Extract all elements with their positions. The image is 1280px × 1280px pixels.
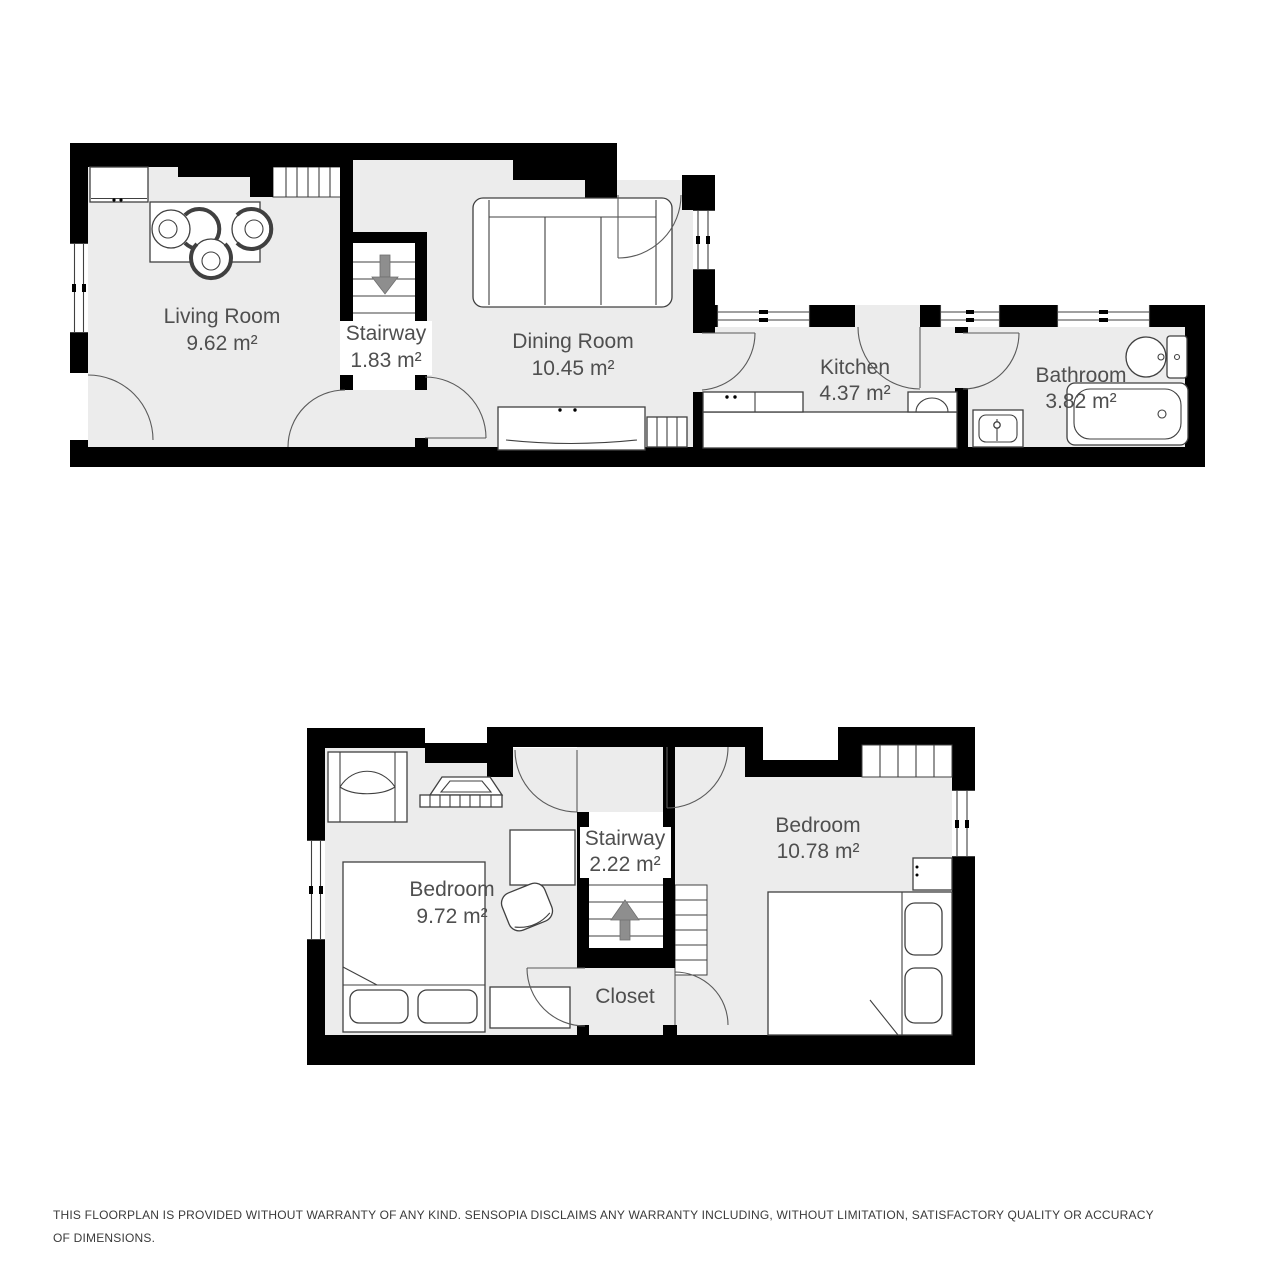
bed-right: [768, 892, 952, 1035]
dining-room-sofa: [473, 198, 672, 307]
room-label-living-room: Living Room: [164, 305, 281, 328]
toilet: [1126, 336, 1187, 378]
wardrobe: [328, 752, 407, 822]
room-area-stairway-1: 1.83 m²: [350, 349, 421, 372]
upper-floor-plan: Bedroom 9.72 m² Stairway 2.22 m² Bedroom…: [307, 727, 975, 1065]
disclaimer-text: THIS FLOORPLAN IS PROVIDED WITHOUT WARRA…: [53, 1204, 1158, 1250]
room-area-stairway-2: 2.22 m²: [589, 853, 660, 876]
exterior-notch: [763, 727, 838, 760]
room-label-kitchen: Kitchen: [820, 356, 890, 379]
room-label-bedroom-right: Bedroom: [775, 814, 860, 837]
dining-room-window: [693, 210, 715, 270]
room-area-bedroom-left: 9.72 m²: [416, 905, 487, 928]
bathroom-window: [1057, 305, 1150, 327]
side-steps: [675, 885, 707, 975]
kitchen-sink: [908, 392, 957, 412]
exterior-gap: [617, 143, 693, 180]
landing-floor: [577, 747, 663, 812]
living-room-window: [70, 243, 88, 333]
room-label-dining-room: Dining Room: [512, 330, 633, 353]
room-label-bedroom-left: Bedroom: [409, 878, 494, 901]
built-in-shelving: [862, 745, 952, 777]
living-room-chair: [191, 239, 231, 278]
dining-room-radiator: [647, 417, 687, 447]
room-area-kitchen: 4.37 m²: [819, 382, 890, 405]
ground-floor-plan: Living Room 9.62 m² Stairway 1.83 m² Din…: [70, 143, 1205, 467]
floorplan-page: Living Room 9.62 m² Stairway 1.83 m² Din…: [0, 0, 1280, 1280]
room-label-stairway-1: Stairway: [346, 322, 427, 345]
bedroom-left-window: [307, 840, 325, 940]
kitchen-doorway-floor: [855, 305, 920, 327]
stair-passage-floor: [342, 390, 427, 447]
bedroom-right-window: [952, 790, 975, 857]
room-label-stairway-2: Stairway: [585, 827, 666, 850]
room-area-bathroom: 3.82 m²: [1045, 390, 1116, 413]
bathroom-doorway-floor: [955, 333, 968, 388]
floorplan-canvas: Living Room 9.62 m² Stairway 1.83 m² Din…: [0, 0, 1280, 1280]
dining-room-sideboard: [498, 407, 645, 450]
living-room-cupboard: [90, 167, 148, 202]
bathroom-sink: [973, 410, 1023, 447]
desk: [510, 830, 575, 885]
room-label-closet: Closet: [595, 985, 655, 1008]
dresser: [490, 987, 570, 1028]
room-area-living-room: 9.62 m²: [186, 332, 257, 355]
room-area-dining-room: 10.45 m²: [532, 357, 615, 380]
kitchen-window: [717, 305, 810, 327]
room-label-bathroom: Bathroom: [1035, 364, 1126, 387]
living-room-chair: [232, 209, 271, 249]
upper-flight-hatch: [273, 167, 342, 197]
kitchen-window-2: [940, 305, 1000, 327]
nightstand: [913, 858, 952, 890]
room-area-bedroom-right: 10.78 m²: [777, 840, 860, 863]
